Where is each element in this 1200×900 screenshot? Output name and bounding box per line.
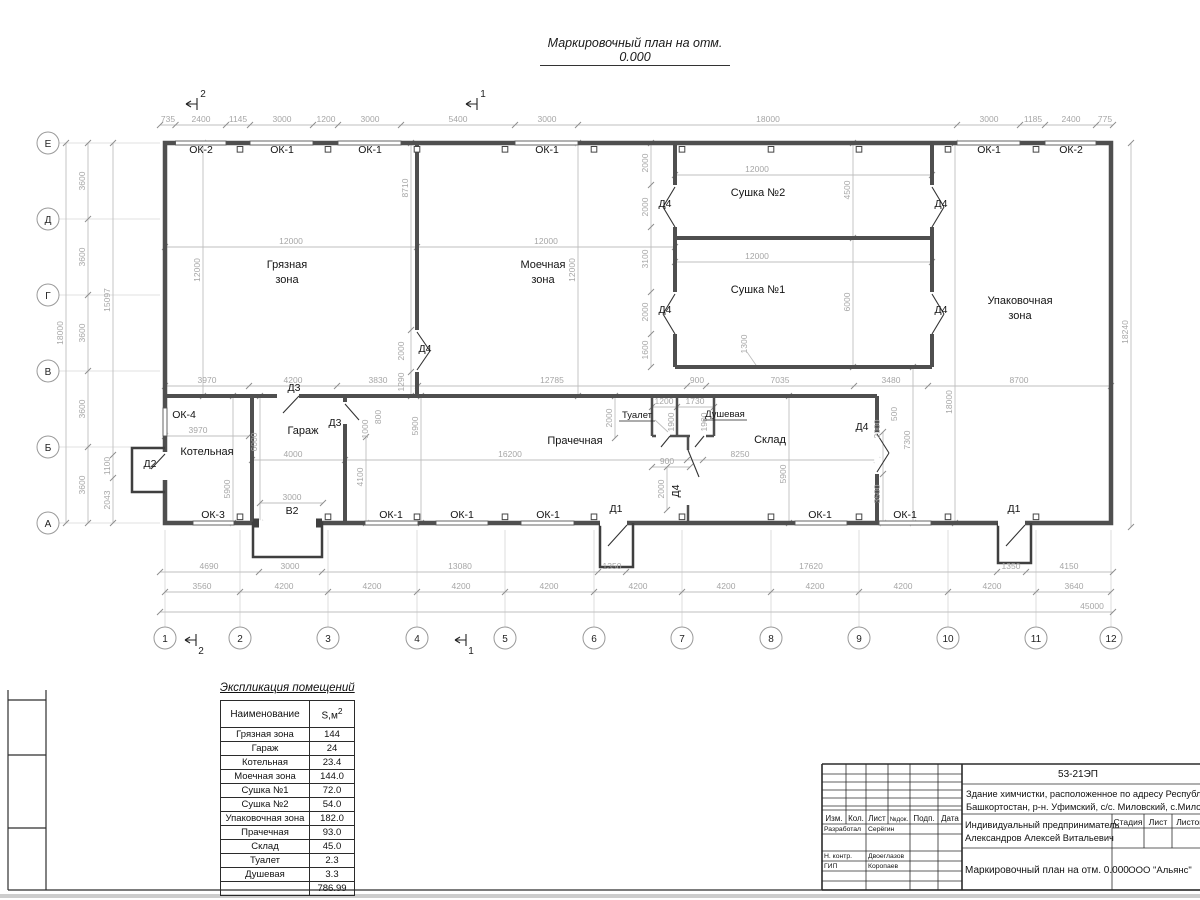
schedule-title: Экспликация помещений [220,682,355,694]
room-name: Гараж [221,742,310,756]
dim-label: 3000 [281,561,300,571]
axis-col-label: 5 [502,634,508,645]
dim-label: 900 [690,375,704,385]
dim-label: 3600 [77,475,87,494]
room-name: Душевая [221,868,310,882]
dim-label: 5400 [449,114,468,124]
col-podp: Подп. [913,814,934,823]
axis-col-label: 2 [237,634,243,645]
section-mark-label: 1 [480,89,486,100]
wall-openings [162,140,1096,526]
table-row: Гараж24 [221,742,355,756]
table-row: Упаковочная зона182.0 [221,812,355,826]
dim-label: 12000 [745,164,769,174]
room-label: зона [275,274,299,286]
sheet-name: Маркировочный план на отм. 0.000 [965,865,1129,876]
room-name: Моечная зона [221,770,310,784]
title-block: 53-21ЭП Здание химчистки, расположенное … [822,764,1200,890]
window-label: ОК-1 [535,144,559,156]
dim-label: 12000 [745,251,769,261]
axis-row-label: Е [45,139,52,150]
dim-label: 18000 [944,390,954,414]
dim-label: 12785 [540,375,564,385]
dim-label: 1145 [229,114,248,124]
axis-row-label: Г [45,291,51,302]
room-area: 72.0 [310,784,355,798]
dim-label: 3600 [77,171,87,190]
dim-label: 4200 [717,581,736,591]
col-list: Лист [868,814,886,823]
schedule-table: Наименование S,м2 Грязная зона144 Гараж2… [220,700,355,896]
dim-label: 8250 [731,449,750,459]
room-name: Сушка №1 [221,784,310,798]
dim-label: 5900 [222,479,232,498]
dim-label: 4200 [540,581,559,591]
window-glyphs [163,141,1096,525]
dim-label: 12000 [567,258,577,282]
axis-col-label: 3 [325,634,331,645]
dim-label: 2000 [640,153,650,172]
door-label: Д3 [329,417,342,429]
dim-label: 16200 [498,449,522,459]
gate-label: В2 [286,505,299,517]
door-label: Д4 [935,198,948,210]
client-line2: Александров Алексей Витальевич [965,833,1114,843]
room-area: 54.0 [310,798,355,812]
table-row: Склад45.0 [221,840,355,854]
area-unit: S,м [322,711,338,722]
dim-label: 1900 [666,412,676,431]
dim-label: 12000 [279,236,303,246]
dim-label: 3970 [198,375,217,385]
window-label: ОК-1 [270,144,294,156]
name-gip: Коропаев [868,863,899,870]
dim-label: 2000 [396,341,406,360]
door-label: Д4 [670,484,682,497]
room-area: 23.4 [310,756,355,770]
axis-col-label: 4 [414,634,420,645]
section-marks [185,98,477,646]
axis-col-label: 6 [591,634,597,645]
door-label: Д3 [288,382,301,394]
sheet-header: Лист [1149,817,1168,827]
room-area: 182.0 [310,812,355,826]
room-area: 24 [310,742,355,756]
dim-label: 2000 [872,419,882,438]
dim-label: 2000 [640,302,650,321]
table-row: Моечная зона144.0 [221,770,355,784]
room-area: 2.3 [310,854,355,868]
table-row: Душевая3.3 [221,868,355,882]
table-row: Грязная зона144 [221,728,355,742]
room-label: Склад [754,434,786,446]
axis-row-label: Д [45,215,52,226]
dim-label: 3480 [882,375,901,385]
room-label: зона [531,274,555,286]
dim-label: 500 [889,407,899,421]
gate-projection [253,523,322,557]
dim-label: 3560 [193,581,212,591]
area-unit-sup: 2 [338,706,343,716]
dim-label: 3600 [77,323,87,342]
room-name: Упаковочная зона [221,812,310,826]
dim-label: 1200 [655,396,674,406]
door-label: Д4 [659,304,672,316]
schedule-col-area: S,м2 [310,701,355,728]
dim-label: 2000 [604,408,614,427]
structural-columns [237,147,1039,520]
role-ncontr: Н. контр. [824,853,852,860]
door-label: Д2 [144,458,157,470]
dim-label: 3600 [77,247,87,266]
dim-label: 4100 [355,467,365,486]
section-mark-label: 1 [468,646,474,657]
room-schedule: Экспликация помещений Наименование S,м2 … [220,682,355,896]
dim-label: 1100 [102,457,112,476]
dim-label: 735 [161,114,175,124]
room-label: Сушка №2 [731,187,785,199]
door-label: Д4 [419,343,432,355]
window-label: ОК-1 [358,144,382,156]
sheets-header: Листов [1176,817,1200,827]
dim-label: 4200 [275,581,294,591]
dim-label: 18240 [1120,320,1130,344]
total-empty-cell [221,882,310,896]
dim-label: 1185 [1024,114,1043,124]
room-label: Туалет [622,410,653,421]
dim-label: 6000 [249,432,259,451]
dim-label: 2000 [656,479,666,498]
window-label: ОК-1 [977,144,1001,156]
dim-label: 1350 [1002,561,1021,571]
room-name: Грязная зона [221,728,310,742]
dim-label: 1000 [360,419,370,438]
dim-label: 17620 [799,561,823,571]
dim-label: 7035 [771,375,790,385]
section-mark-label: 2 [198,646,204,657]
dim-label: 4200 [983,581,1002,591]
dim-label: 4500 [842,180,852,199]
dim-label: 4200 [629,581,648,591]
company-name: ООО "Альянс" [1128,865,1192,876]
room-area: 93.0 [310,826,355,840]
window-label: ОК-3 [201,509,225,521]
dim-label: 3000 [980,114,999,124]
dim-label: 900 [660,456,674,466]
dim-label: 2400 [192,114,211,124]
dim-label: 2400 [1062,114,1081,124]
axis-row-label: В [45,367,52,378]
col-data: Дата [941,814,959,823]
room-label: Котельная [180,446,233,458]
dim-label: 800 [373,410,383,424]
stage-header: Стадия [1114,817,1143,827]
room-name: Прачечная [221,826,310,840]
dim-label: 3000 [273,114,292,124]
axis-col-label: 1 [162,634,168,645]
room-area: 3.3 [310,868,355,882]
window-label: ОК-4 [172,409,196,421]
dim-label: 1730 [686,396,705,406]
door-label: Д1 [1008,503,1021,515]
floor-plan-canvas: 2 1 2 1 Е Д Г В Б А 1 2 3 4 5 6 7 8 9 10… [0,0,1200,900]
role-developed: Разработал [824,825,861,833]
dim-label: 18000 [55,321,65,345]
dim-label: 3970 [189,425,208,435]
axis-col-label: 7 [679,634,685,645]
col-ndok: №док. [890,816,909,823]
col-izm: Изм. [825,814,842,823]
table-row: Туалет2.3 [221,854,355,868]
dim-label: 4200 [806,581,825,591]
door-label: Д4 [659,198,672,210]
room-name: Сушка №2 [221,798,310,812]
total-area: 786.99 [310,882,355,896]
dim-label: 4150 [1060,561,1079,571]
dim-label: 3000 [361,114,380,124]
dim-label: 2043 [102,490,112,509]
dim-label: 12000 [534,236,558,246]
room-label: Упаковочная [987,295,1052,307]
axis-row-label: А [45,519,52,530]
project-code: 53-21ЭП [1058,769,1098,780]
dim-label: 13080 [448,561,472,571]
room-label: зона [1008,310,1032,322]
role-gip: ГИП [824,863,838,870]
table-row: Котельная23.4 [221,756,355,770]
room-name: Склад [221,840,310,854]
room-label: Душевая [705,409,745,420]
dim-label: 4690 [200,561,219,571]
dim-label: 1600 [640,340,650,359]
room-label: Сушка №1 [731,284,785,296]
dim-label: 5900 [410,416,420,435]
dim-label: 7300 [902,430,912,449]
room-area: 144.0 [310,770,355,784]
dim-label: 15097 [102,288,112,312]
dim-label: 4200 [363,581,382,591]
axis-col-label: 12 [1105,634,1117,645]
room-label: Гараж [287,425,319,437]
table-row: Сушка №172.0 [221,784,355,798]
dim-label: 1200 [317,114,336,124]
dim-label: 8710 [400,178,410,197]
door-label: Д4 [935,304,948,316]
axis-col-label: 9 [856,634,862,645]
room-label: Грязная [267,259,308,271]
room-name: Туалет [221,854,310,868]
window-label: ОК-2 [1059,144,1083,156]
schedule-col-name: Наименование [221,701,310,728]
dim-label: 18000 [756,114,780,124]
dim-label: 3640 [1065,581,1084,591]
sheet-edge-shadow [0,894,1200,898]
window-label: ОК-1 [893,509,917,521]
window-label: ОК-1 [536,509,560,521]
axis-col-label: 11 [1031,634,1042,645]
window-label: ОК-1 [450,509,474,521]
table-row: Прачечная93.0 [221,826,355,840]
name-ncontr: Двоеглазов [868,853,905,860]
dim-label: 4200 [452,581,471,591]
dimension-lines [66,125,1131,612]
dim-label: 2000 [640,197,650,216]
grid-leader-lines [59,143,1111,627]
table-row-total: 786.99 [221,882,355,896]
dim-label: 1350 [603,561,622,571]
name-developed: Серёгин [868,826,895,833]
table-row: Сушка №254.0 [221,798,355,812]
dim-label: 3100 [640,249,650,268]
object-description-line1: Здание химчистки, расположенное по адрес… [966,789,1200,799]
client-line1: Индивидуальный предприниматель [965,820,1120,830]
dim-label: 3830 [369,375,388,385]
object-description-line2: Башкортостан, р-н. Уфимский, с/с. Миловс… [966,802,1200,812]
window-label: ОК-1 [379,509,403,521]
dim-label: 45000 [1080,601,1104,611]
col-kol: Кол. [848,814,864,823]
door-label: Д4 [856,421,869,433]
dim-label: 3000 [283,492,302,502]
room-label: Моечная [520,259,565,271]
window-label: ОК-2 [189,144,213,156]
axis-bubbles [37,132,1122,649]
room-area: 45.0 [310,840,355,854]
window-label: ОК-1 [808,509,832,521]
room-name: Котельная [221,756,310,770]
drawing-sheet: Маркировочный план на отм. 0.000 [0,0,1200,900]
room-area: 144 [310,728,355,742]
dim-label: 8700 [1010,375,1029,385]
dimension-ticks [63,122,1134,615]
dim-label: 6000 [842,292,852,311]
dim-label: 1300 [739,334,749,353]
section-mark-label: 2 [200,89,206,100]
dim-label: 775 [1098,114,1112,124]
axis-col-label: 8 [768,634,774,645]
dim-label: 12000 [192,258,202,282]
dim-label: 5900 [778,464,788,483]
axis-row-label: Б [45,443,52,454]
dim-label: 3500 [872,484,882,503]
axis-col-label: 10 [942,634,954,645]
dim-label: 3000 [538,114,557,124]
room-label: Прачечная [547,435,602,447]
door-label: Д1 [610,503,623,515]
dim-label: 1290 [396,372,406,391]
dim-label: 3600 [77,399,87,418]
dim-label: 4000 [284,449,303,459]
dim-label: 4200 [894,581,913,591]
